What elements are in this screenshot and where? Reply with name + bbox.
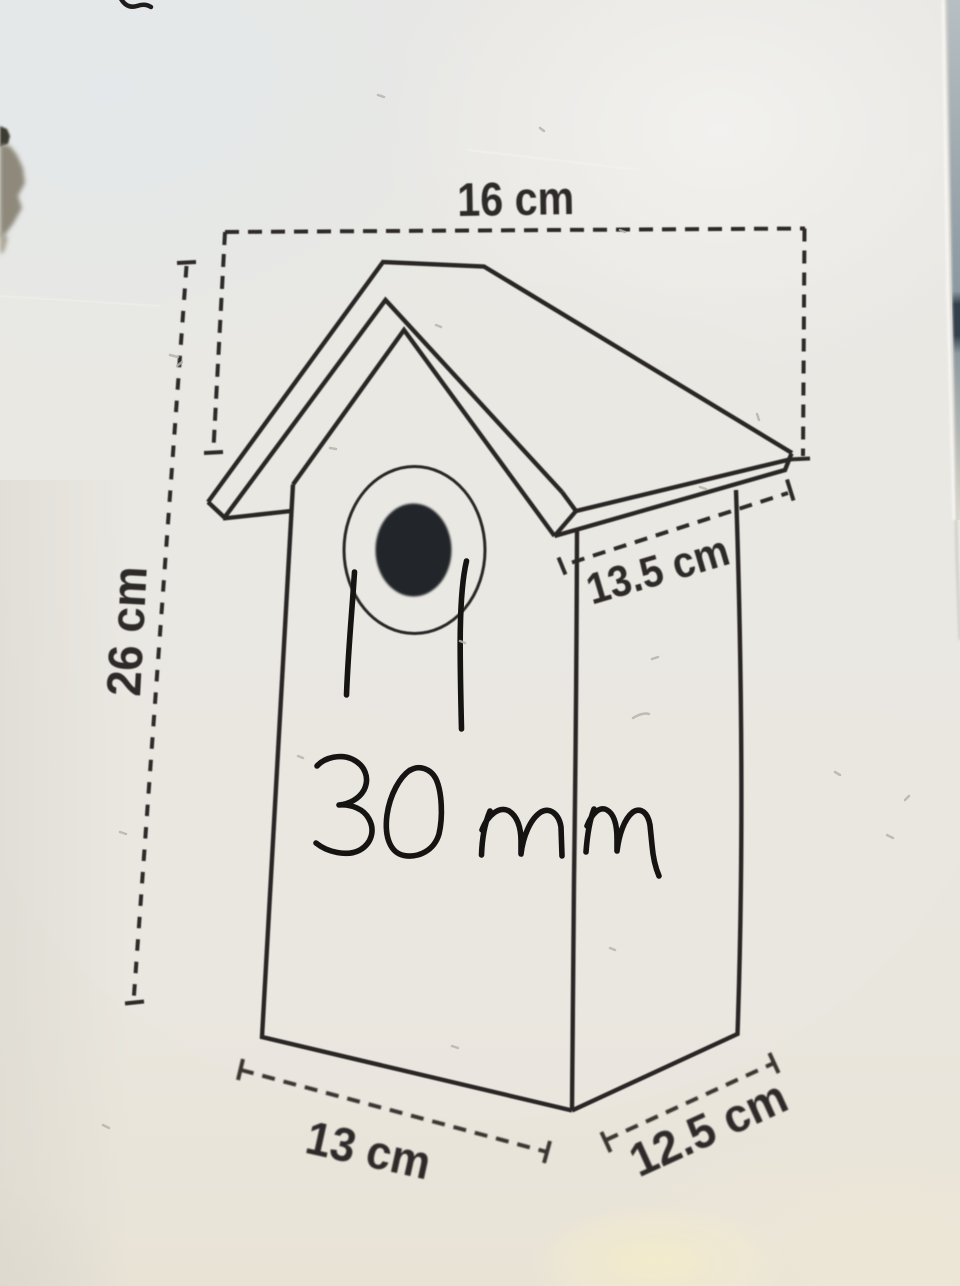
svg-text:16 cm: 16 cm (457, 171, 575, 226)
svg-text:26 cm: 26 cm (98, 565, 158, 698)
